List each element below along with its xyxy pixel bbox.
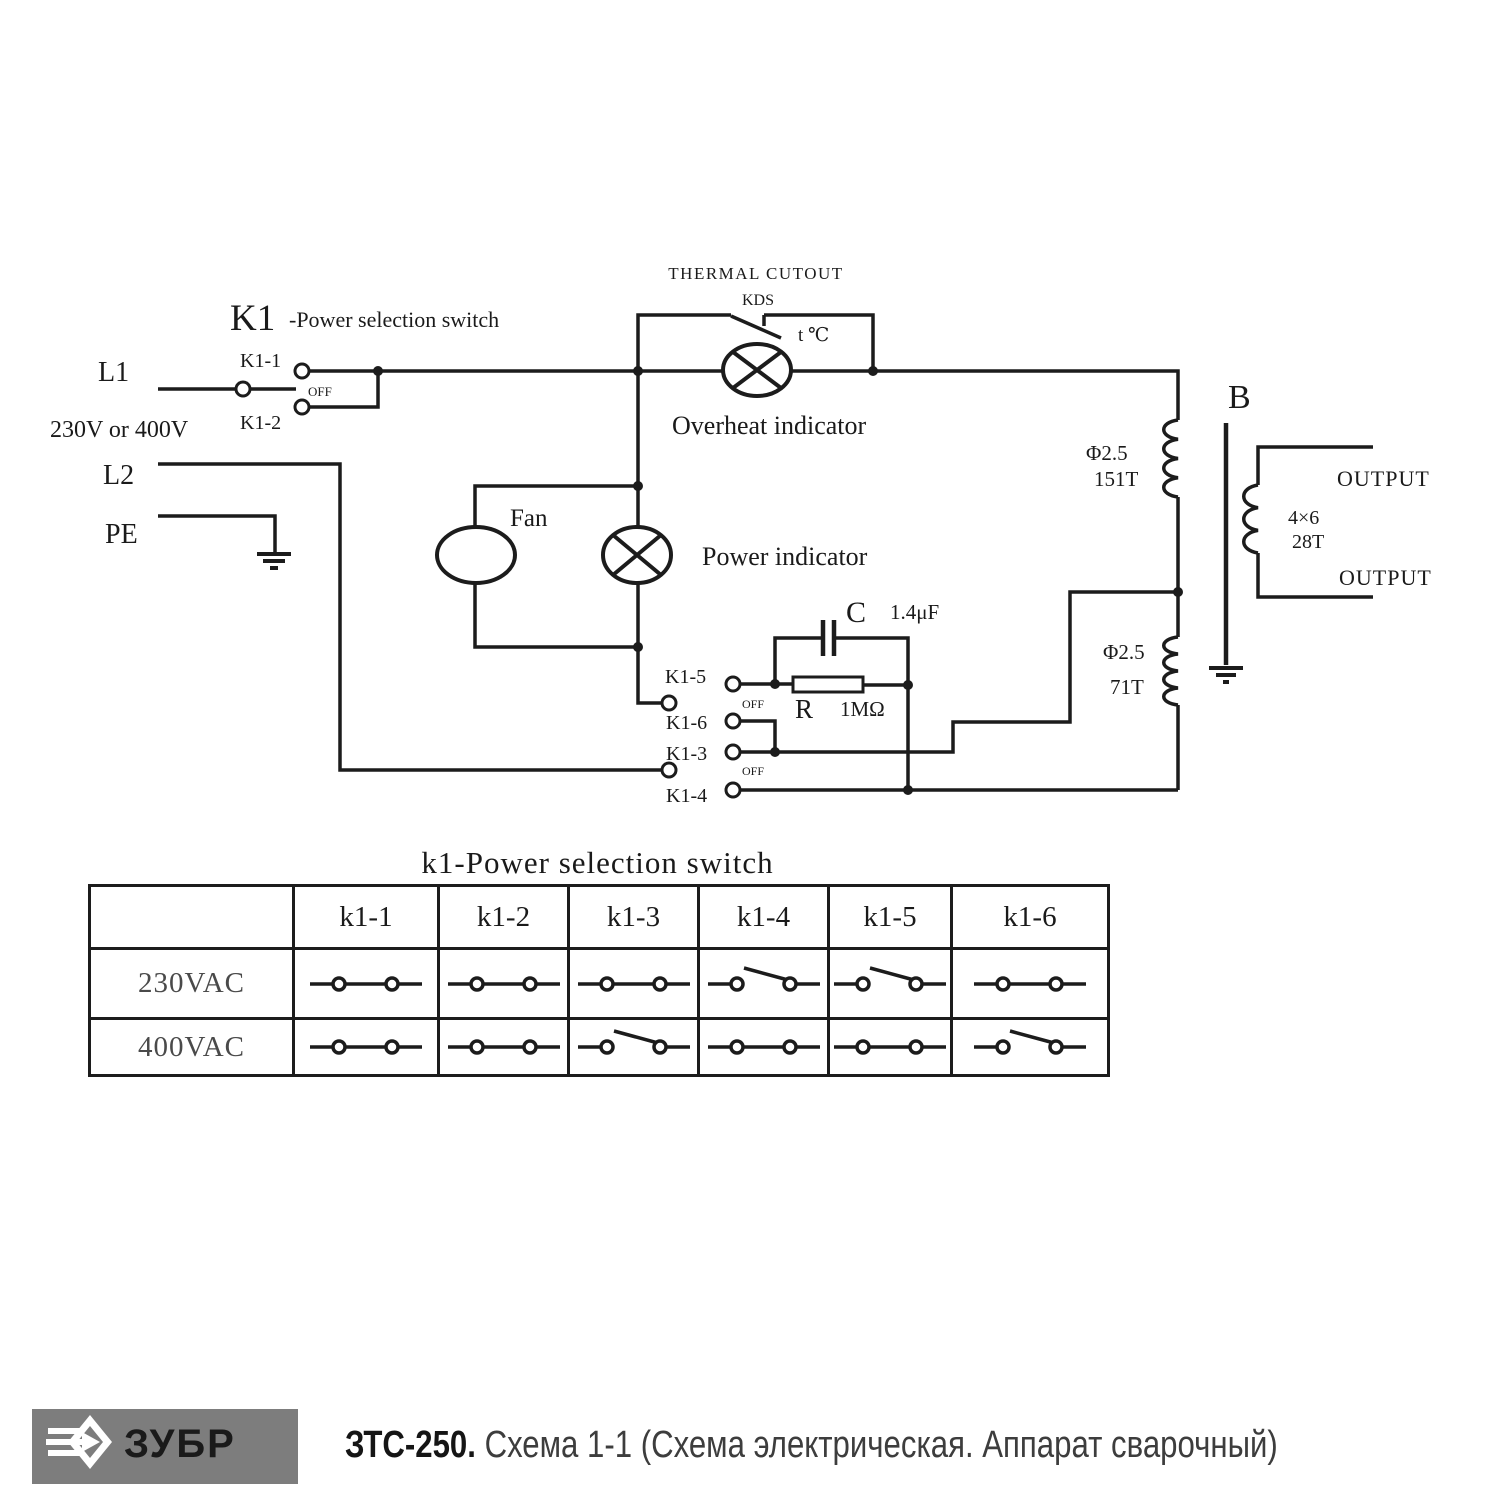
switch-symbol — [574, 965, 694, 997]
label-thermal-cutout: THERMAL CUTOUT — [668, 264, 843, 283]
switch-symbol — [704, 965, 824, 997]
label-k1-4: K1-4 — [666, 785, 707, 807]
label-resistor-name: R — [795, 694, 813, 724]
col-header-k1-3: k1-3 — [569, 886, 699, 949]
label-pe: PE — [105, 519, 138, 550]
contact-pole-mid — [662, 696, 676, 710]
label-output-top: OUTPUT — [1337, 466, 1430, 491]
label-transformer-b: B — [1228, 379, 1251, 416]
schema-description: Схема 1-1 (Схема электрическая. Аппарат … — [485, 1424, 1278, 1466]
wire-pe — [158, 516, 275, 552]
logo-stripe — [48, 1428, 82, 1434]
row-label-400vac: 400VAC — [90, 1019, 294, 1076]
thermal-switch-blade — [731, 316, 781, 338]
switch-symbol — [444, 965, 564, 997]
label-primary-upper-wire: Φ2.5 — [1086, 441, 1128, 465]
switch-cell — [699, 1019, 829, 1076]
col-header-k1-5: k1-5 — [829, 886, 952, 949]
label-primary-lower-wire: Φ2.5 — [1103, 640, 1145, 664]
label-k1-1: K1-1 — [240, 350, 281, 372]
col-header-k1-6: k1-6 — [952, 886, 1109, 949]
label-output-bottom: OUTPUT — [1339, 565, 1432, 590]
switch-symbol — [444, 1029, 564, 1061]
label-capacitor-value: 1.4μF — [890, 600, 939, 624]
label-l1: L1 — [98, 357, 129, 388]
label-k1-2: K1-2 — [240, 412, 281, 434]
switch-cell — [952, 949, 1109, 1019]
label-k1-heading: K1 — [230, 298, 275, 339]
label-k1-5: K1-5 — [665, 666, 706, 688]
wire-l2 — [158, 464, 662, 770]
contact-pole-bot — [662, 763, 676, 777]
contact-k1-5 — [726, 677, 740, 691]
switch-cell — [294, 1019, 439, 1076]
contact-k1-1 — [295, 364, 309, 378]
switch-cell — [439, 949, 569, 1019]
core-ground-icon — [1209, 668, 1243, 682]
footer-caption: ЗТС-250. Схема 1-1 (Схема электрическая.… — [345, 1424, 1278, 1467]
contact-k1-6 — [726, 714, 740, 728]
contact-k1-2 — [295, 400, 309, 414]
label-secondary-wire: 4×6 — [1288, 507, 1319, 529]
contact-pole-top — [236, 382, 250, 396]
zubr-logo-icon: ЗУБР — [32, 1409, 298, 1484]
logo-stripe — [48, 1450, 82, 1456]
col-header-k1-1: k1-1 — [294, 886, 439, 949]
label-capacitor-name: C — [846, 596, 866, 629]
primary-winding-151t-icon — [1164, 420, 1178, 497]
col-header-k1-2: k1-2 — [439, 886, 569, 949]
label-t-celsius: t ℃ — [798, 325, 829, 346]
switch-symbol — [306, 965, 426, 997]
contact-k1-3 — [726, 745, 740, 759]
switch-cell — [569, 949, 699, 1019]
resistor-icon — [793, 677, 863, 692]
primary-winding-71t-icon — [1164, 637, 1178, 705]
label-off-bot: OFF — [742, 764, 764, 778]
col-header-k1-4: k1-4 — [699, 886, 829, 949]
label-k1-6: K1-6 — [666, 712, 707, 734]
table-row-230vac: 230VAC — [90, 949, 1109, 1019]
wire-k1-3-tap — [740, 592, 1178, 752]
secondary-winding-28t-icon — [1244, 485, 1258, 553]
switch-symbol — [970, 1029, 1090, 1061]
label-primary-upper-turns: 151T — [1094, 467, 1139, 491]
label-voltage: 230V or 400V — [50, 417, 189, 443]
switch-symbol — [704, 1029, 824, 1061]
switch-symbol — [970, 965, 1090, 997]
brand-name: ЗУБР — [124, 1422, 236, 1466]
label-off-top: OFF — [308, 384, 332, 399]
model-number: ЗТС-250. — [345, 1424, 476, 1466]
switch-symbol — [830, 1029, 950, 1061]
switch-symbol — [574, 1029, 694, 1061]
capacitor-icon — [823, 620, 834, 656]
fan-motor-icon — [437, 527, 515, 583]
wire-k1-6 — [740, 721, 775, 752]
label-resistor-value: 1MΩ — [840, 697, 885, 721]
wire-thermal-left — [638, 315, 731, 371]
switch-cell — [439, 1019, 569, 1076]
switch-cell — [699, 949, 829, 1019]
scanned-schematic-page: THERMAL CUTOUT KDS t ℃ K1 -Power selecti… — [0, 0, 1500, 1500]
table-corner-cell — [90, 886, 294, 949]
power-lamp-icon — [603, 527, 671, 583]
label-overheat-indicator: Overheat indicator — [672, 411, 867, 440]
label-fan: Fan — [510, 505, 548, 532]
power-selection-table: k1-1 k1-2 k1-3 k1-4 k1-5 k1-6 230VAC — [88, 884, 1110, 1077]
components — [437, 344, 863, 692]
switch-cell — [294, 949, 439, 1019]
label-off-mid: OFF — [742, 697, 764, 711]
overheat-lamp-icon — [723, 344, 791, 396]
label-primary-lower-turns: 71T — [1110, 675, 1144, 699]
switch-symbol — [830, 965, 950, 997]
switch-cell — [569, 1019, 699, 1076]
table-row-400vac: 400VAC — [90, 1019, 1109, 1076]
table-title: k1-Power selection switch — [88, 845, 1107, 881]
table-header-row: k1-1 k1-2 k1-3 k1-4 k1-5 k1-6 — [90, 886, 1109, 949]
pe-ground-icon — [257, 554, 291, 568]
switch-cell — [952, 1019, 1109, 1076]
switch-cell — [829, 1019, 952, 1076]
switch-symbol — [306, 1029, 426, 1061]
switch-cell — [829, 949, 952, 1019]
contact-k1-4 — [726, 783, 740, 797]
row-label-230vac: 230VAC — [90, 949, 294, 1019]
logo-stripe — [46, 1439, 84, 1445]
label-power-indicator: Power indicator — [702, 542, 868, 571]
label-kds: KDS — [742, 292, 774, 309]
label-l2: L2 — [103, 460, 134, 491]
label-k1-3: K1-3 — [666, 743, 707, 765]
label-k1-heading-suffix: -Power selection switch — [289, 307, 499, 332]
label-secondary-turns: 28T — [1292, 531, 1324, 553]
zubr-logo: ЗУБР — [32, 1409, 298, 1484]
circuit-diagram: THERMAL CUTOUT KDS t ℃ K1 -Power selecti… — [0, 0, 1500, 1500]
